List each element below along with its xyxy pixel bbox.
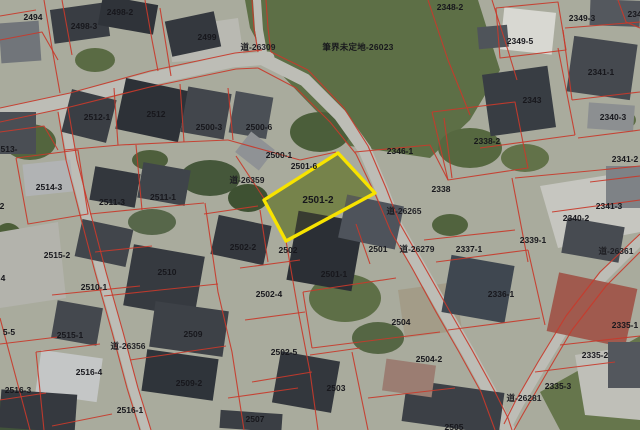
parcel-label: 2510 — [158, 267, 177, 277]
parcel-label: 2515-2 — [44, 250, 71, 260]
parcel-label: 2501-6 — [291, 161, 318, 171]
parcel-label: 513- — [0, 144, 17, 154]
parcel-label: 2501-2 — [302, 195, 334, 206]
road-label: 道-26359 — [230, 175, 265, 185]
parcel-label: 2516-3 — [5, 385, 32, 395]
parcel-label: 2 — [0, 201, 5, 211]
parcel-label: 2341-3 — [596, 201, 623, 211]
parcel-label: 2503 — [327, 383, 346, 393]
parcel-label: 2335-2 — [582, 350, 609, 360]
parcel-label: 2339-1 — [520, 235, 547, 245]
road-label: 道-26279 — [400, 244, 435, 254]
parcel-label: 2502-4 — [256, 289, 283, 299]
road-label: 道-26309 — [241, 42, 276, 52]
parcel-label: 2514-3 — [36, 182, 63, 192]
parcel-label: 2509 — [184, 329, 203, 339]
area-label: 筆界未定地-26023 — [322, 42, 393, 52]
parcel-label: 2500-6 — [246, 122, 273, 132]
parcel-label: 2348-2 — [437, 2, 464, 12]
parcel-label: 2512-1 — [84, 112, 111, 122]
parcel-label: 2515-1 — [57, 330, 84, 340]
road-label: 道-26356 — [111, 341, 146, 351]
parcel-label: 2343 — [523, 95, 542, 105]
parcel-label: 2502 — [279, 245, 298, 255]
parcel-label: 2505 — [445, 422, 464, 430]
parcel-label: 2501-1 — [321, 269, 348, 279]
parcel-label: 2516-1 — [117, 405, 144, 415]
parcel-label: 2502-2 — [230, 242, 257, 252]
parcel-label: 2504 — [392, 317, 411, 327]
parcel-label: 2336-1 — [488, 289, 515, 299]
parcel-label: 2335-1 — [612, 320, 639, 330]
parcel-label: 2338 — [432, 184, 451, 194]
parcel-label: 2341-1 — [588, 67, 615, 77]
cadastral-map[interactable]: 24942498-22498-324992348-22349-32349-523… — [0, 0, 640, 430]
parcel-label: 4 — [1, 273, 6, 283]
parcel-label: 2516-4 — [76, 367, 103, 377]
parcel-label: 2335-3 — [545, 381, 572, 391]
parcel-label: 2507 — [246, 414, 265, 424]
parcel-label: 2494 — [24, 12, 43, 22]
parcel-label: 2499 — [198, 32, 217, 42]
parcel-label: 2349-5 — [507, 36, 534, 46]
parcel-label: 2498-3 — [71, 21, 98, 31]
parcel-label: 2511-1 — [150, 192, 176, 202]
road-label: 道-26281 — [507, 393, 542, 403]
parcel-label: 2502-5 — [271, 347, 298, 357]
parcel-label: 2349 — [628, 9, 640, 19]
parcel-label: 2346-1 — [387, 146, 414, 156]
parcel-label: 2509-2 — [176, 378, 203, 388]
parcel-label: 5-5 — [3, 327, 16, 337]
parcel-label: 2341-2 — [612, 154, 639, 164]
parcel-label: 2338-2 — [474, 136, 501, 146]
parcel-label: 2337-1 — [456, 244, 483, 254]
parcel-label: 2512 — [147, 109, 166, 119]
parcel-label: 2511-3 — [99, 197, 125, 207]
road-label: 道-26361 — [599, 246, 634, 256]
parcel-label: 2349-3 — [569, 13, 596, 23]
parcel-label: 2498-2 — [107, 7, 134, 17]
parcel-label: 2500-3 — [196, 122, 223, 132]
road-label: 道-26265 — [387, 206, 422, 216]
parcel-label: 2500-1 — [266, 150, 293, 160]
parcel-label: 2340-2 — [563, 213, 590, 223]
parcel-label: 2510-1 — [81, 282, 108, 292]
parcel-label: 2501 — [369, 244, 388, 254]
parcel-label: 2504-2 — [416, 354, 443, 364]
parcel-label: 2340-3 — [600, 112, 627, 122]
